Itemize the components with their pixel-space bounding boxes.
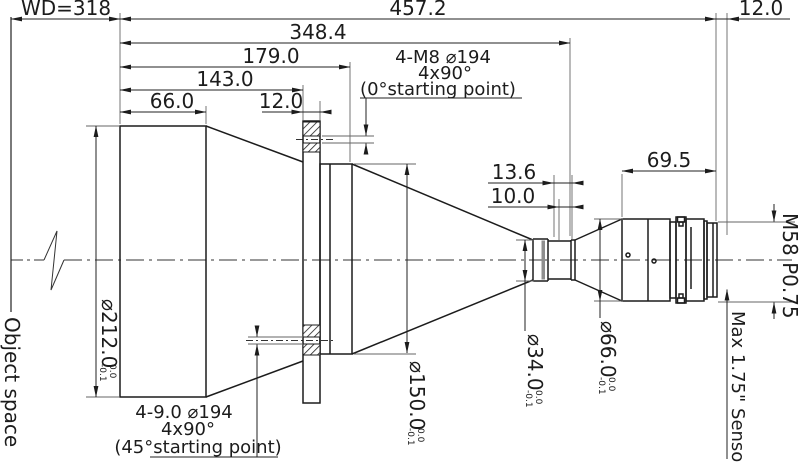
dim-overall-length: 457.2 [389,0,446,20]
dia-66-label: ⌀66.0 [596,321,620,378]
mid-cylinder [320,164,352,354]
mid-cone-bottom [352,280,533,354]
dim-179: 179.0 [242,44,299,68]
dia-34-label: ⌀34.0 [523,334,547,391]
rear-cone-bottom [575,280,622,301]
front-holes-callout-line3: (0°starting point) [360,79,516,100]
max-sensor-label: Max 1.75" Sensor [727,311,748,464]
dim-66: 66.0 [150,89,195,113]
object-space-label: Object space [0,317,24,447]
mounting-flange [303,121,320,403]
dia-34-tol-upper: 0.0 [533,390,543,405]
drawing-svg: WD=318 457.2 12.0 348.4 179.0 143.0 66.0… [0,0,800,464]
dim-348: 348.4 [289,20,346,44]
set-screw-1 [626,253,630,257]
dia-212-tol-lower: -0.1 [97,364,107,382]
dia-34-tol-lower: -0.1 [523,390,533,408]
lens-mechanical-drawing: WD=318 457.2 12.0 348.4 179.0 143.0 66.0… [0,0,800,464]
dim-sensor-offset: 12.0 [739,0,784,20]
dia-66-tol-upper: 0.0 [606,377,616,392]
waist-band [542,241,546,280]
thread-spec-label: M58 P0.75 [778,213,800,319]
front-barrel [120,126,206,397]
dim-13-6: 13.6 [492,160,537,184]
dia-150-tol-lower: -0.1 [405,428,415,446]
break-symbol [44,231,64,290]
flange-hole-hatching [303,122,320,355]
dia-150-tol-upper: 0.0 [415,428,425,443]
dia-66-tol-lower: -0.1 [596,377,606,395]
dia-150-label: ⌀150.0 [405,361,429,430]
dia-212-label: ⌀212.0 [97,299,121,368]
rear-cone-top [575,219,622,240]
dia-212-tol-upper: 0.0 [107,364,117,379]
dim-flange-thickness: 12.0 [259,89,304,113]
front-cone-top [206,126,303,162]
front-cone-bottom [206,361,303,397]
dim-working-distance: WD=318 [21,0,111,20]
set-screw-2 [652,259,656,263]
dim-rear-length: 69.5 [647,148,692,172]
back-holes-callout-line3: (45°starting point) [114,437,281,458]
dim-10-0: 10.0 [491,184,536,208]
dim-143: 143.0 [196,67,253,91]
